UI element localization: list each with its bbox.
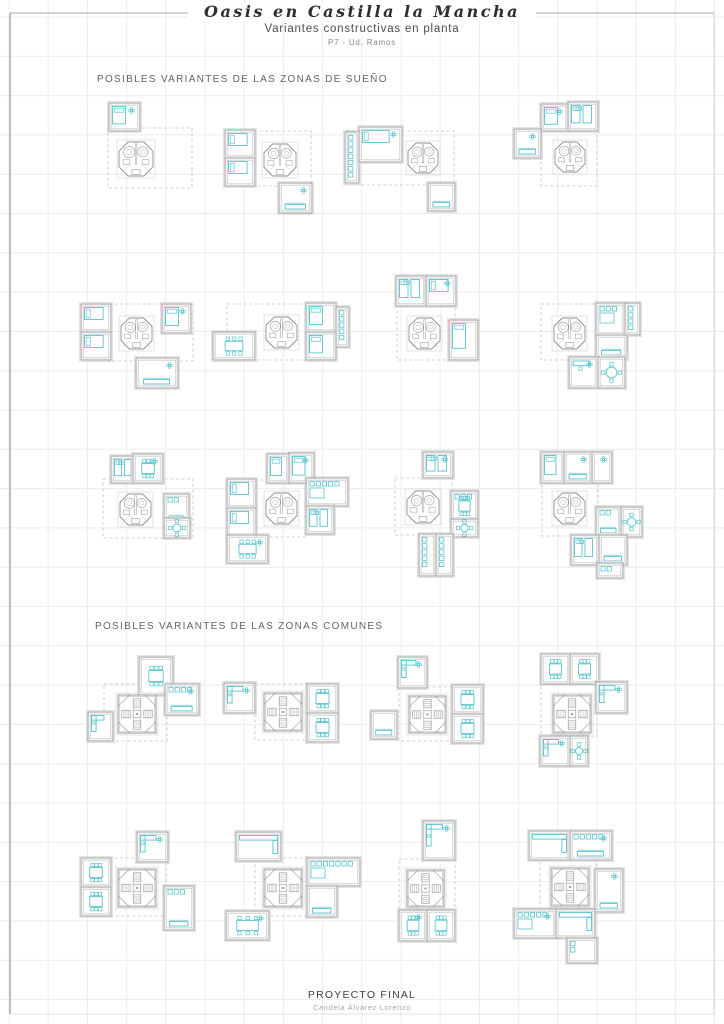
room [595,561,624,579]
room [447,318,479,361]
room [512,907,557,939]
core-stairs [405,868,446,909]
room [305,856,361,887]
room [304,330,337,361]
core-bath [117,140,155,178]
plan-cluster-sueno-1 [107,101,192,188]
room [421,819,456,861]
room [596,355,626,389]
room [134,356,179,389]
plan-cluster-sueno-12 [539,450,643,579]
core-stairs [116,693,158,735]
room [397,908,428,942]
room [539,102,569,132]
room [86,710,114,742]
room [449,517,479,538]
room [590,450,613,484]
room [623,301,641,336]
room [304,476,349,507]
room [107,101,141,132]
room [79,885,112,917]
room [265,452,290,484]
core-bath [552,316,587,351]
room [343,130,360,184]
room [594,301,626,336]
room [593,867,624,913]
room [434,532,454,577]
room [539,450,565,484]
room [211,330,256,361]
plan-cluster-comunes-6 [224,830,361,941]
room [369,709,398,740]
room [421,450,454,479]
plan-cluster-sueno-2 [223,128,313,214]
footer-author: Candela Álvarez Lorenzo [0,1003,724,1012]
drawing-sheet: Oasis en Castilla la Mancha Variantes co… [0,0,724,1024]
room [305,884,338,918]
plan-cluster-sueno-9 [103,452,193,539]
core-stairs [551,693,593,735]
room [450,712,484,744]
core-bath [118,492,153,527]
room [568,734,589,767]
room [277,181,313,214]
room [224,909,270,941]
plan-cluster-comunes-3 [369,655,484,744]
room [131,452,164,484]
room [225,477,257,509]
core-bath [264,491,299,526]
footer-project-title: PROYECTO FINAL [0,989,724,1001]
room [426,181,456,212]
room [568,829,613,861]
room [79,330,112,361]
core-bath [405,489,441,525]
room [394,274,427,307]
room [223,156,256,187]
section-heading-suenyo: POSIBLES VARIANTES DE LAS ZONAS DE SUEÑO [97,74,388,85]
room [304,301,337,333]
room [225,533,269,564]
room [566,100,599,132]
plan-cluster-sueno-11 [395,450,480,577]
room [79,856,112,888]
plan-cluster-comunes-4 [538,652,628,767]
section-heading-comunes: POSIBLES VARIANTES DE LAS ZONAS COMUNES [95,621,383,632]
room [539,652,571,685]
room [567,355,599,389]
plan-cluster-sueno-7 [394,274,479,361]
room [135,830,169,863]
room [234,830,282,862]
room [357,125,403,163]
plan-cluster-comunes-7 [397,819,456,942]
plan-cluster-sueno-6 [211,301,350,361]
room [109,454,134,484]
core-bath [407,316,442,351]
core-bath [264,315,299,350]
room [160,302,192,334]
room [162,884,195,931]
room [304,504,335,535]
room [305,711,339,743]
plan-cluster-comunes-8 [512,829,624,964]
room [527,829,571,861]
plan-cluster-comunes-1 [86,655,200,742]
core-stairs [262,691,304,733]
core-stairs [116,867,158,909]
room [162,516,191,539]
room [163,682,200,716]
room [222,681,256,714]
plan-cluster-comunes-5 [79,830,195,931]
core-bath [119,316,154,351]
floor-plan-canvas [0,0,724,1024]
room [594,680,628,714]
room [223,128,256,159]
plan-cluster-sueno-3 [343,125,456,212]
room [538,734,571,767]
core-bath [406,141,440,175]
room [425,908,456,942]
room [396,655,428,689]
core-stairs [262,867,304,909]
plan-cluster-sueno-5 [79,302,193,389]
core-stairs [549,866,591,908]
core-bath [552,491,587,526]
plan-cluster-sueno-4 [512,100,599,186]
room [305,682,339,714]
core-stairs [407,694,448,735]
room [334,305,350,348]
room [450,683,484,715]
room [554,907,596,939]
room [512,127,542,159]
plan-cluster-sueno-8 [541,301,642,389]
core-bath [262,142,298,178]
room [79,302,112,333]
plan-cluster-comunes-2 [222,681,339,743]
room [424,274,457,307]
room [562,450,593,484]
room [565,936,598,964]
